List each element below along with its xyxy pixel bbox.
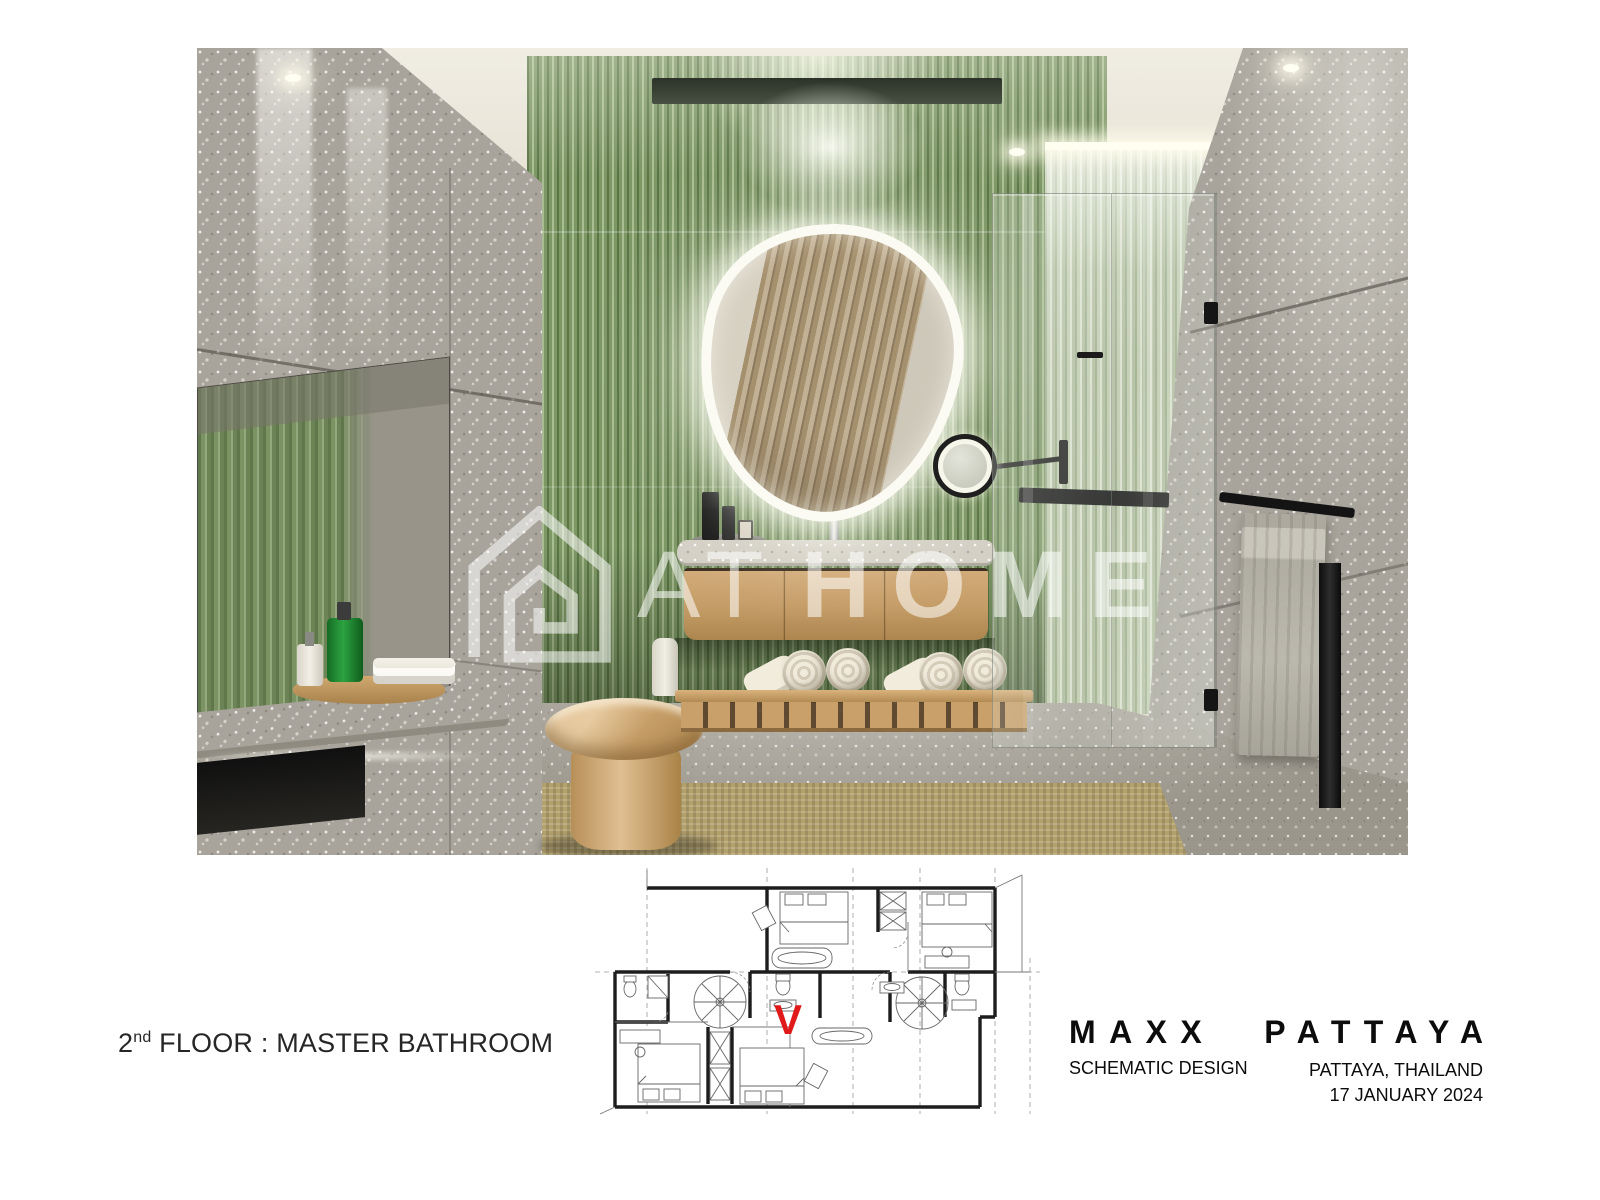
watermark-text: ATHOME bbox=[637, 538, 1174, 633]
floor-plan: V bbox=[590, 862, 1045, 1118]
glass-seam bbox=[1111, 194, 1112, 747]
shower-glass-panel bbox=[992, 193, 1217, 748]
glass-highlight bbox=[1023, 194, 1033, 747]
floor-number: 2 bbox=[118, 1028, 133, 1058]
floor-ordinal: nd bbox=[133, 1029, 151, 1046]
hanging-towel bbox=[1236, 513, 1326, 757]
spiral-stair-left bbox=[694, 976, 746, 1028]
project-word-1: MAXX bbox=[1069, 1014, 1215, 1051]
project-block: MAXX PATTAYA SCHEMATIC DESIGN PATTAYA, T… bbox=[1069, 1014, 1483, 1108]
house-spiral-logo-icon bbox=[465, 506, 615, 664]
bedroom-upper-right bbox=[880, 892, 992, 968]
plan-marker-v: V bbox=[774, 996, 802, 1043]
project-subtitle-row: SCHEMATIC DESIGN PATTAYA, THAILAND 17 JA… bbox=[1069, 1058, 1483, 1108]
wall-washer-light bbox=[735, 82, 925, 212]
floor-text: FLOOR : MASTER BATHROOM bbox=[159, 1028, 553, 1058]
bedroom-lower-left bbox=[620, 1030, 700, 1102]
bathroom-render-image: ATHOME bbox=[197, 48, 1408, 855]
presentation-slide: ATHOME bbox=[0, 0, 1600, 1200]
glass-highlight bbox=[1143, 194, 1153, 747]
phase-label: SCHEMATIC DESIGN bbox=[1069, 1058, 1248, 1108]
project-word-2: PATTAYA bbox=[1264, 1014, 1496, 1051]
vertical-black-rail bbox=[1319, 563, 1341, 808]
closet-column bbox=[710, 1032, 730, 1100]
glass-hinge bbox=[1204, 689, 1218, 711]
pump-cap bbox=[305, 632, 314, 646]
floor-label: 2nd FLOOR : MASTER BATHROOM bbox=[118, 1028, 553, 1059]
glass-hinge bbox=[1204, 302, 1218, 324]
magnifying-mirror bbox=[933, 434, 997, 498]
shower-door-handle bbox=[1077, 352, 1103, 358]
wall-light-sheen bbox=[1207, 48, 1408, 548]
project-title: MAXX PATTAYA bbox=[1069, 1014, 1483, 1051]
cove-light bbox=[1045, 142, 1219, 150]
towel-rack-slats bbox=[681, 702, 1027, 732]
location-date: PATTAYA, THAILAND 17 JANUARY 2024 bbox=[1309, 1058, 1483, 1108]
green-soap-bottle bbox=[327, 618, 363, 682]
pump-cap bbox=[337, 602, 351, 620]
wall-light-streak bbox=[347, 88, 387, 408]
watermark-home: HOME bbox=[801, 532, 1174, 638]
towel-rack-rail bbox=[675, 690, 1033, 702]
bedroom-lower-middle bbox=[740, 1028, 872, 1104]
watermark-at: AT bbox=[637, 532, 775, 638]
stool-base bbox=[571, 746, 681, 850]
date-label: 17 JANUARY 2024 bbox=[1309, 1083, 1483, 1108]
downlight bbox=[1283, 64, 1299, 72]
stool-bowl-top bbox=[545, 698, 703, 760]
watermark: ATHOME bbox=[465, 510, 1174, 660]
location-label: PATTAYA, THAILAND bbox=[1309, 1058, 1483, 1083]
downlight bbox=[1009, 148, 1025, 156]
folded-towel bbox=[373, 658, 455, 684]
downlight bbox=[285, 74, 301, 82]
lotion-pump-bottle bbox=[297, 644, 323, 686]
